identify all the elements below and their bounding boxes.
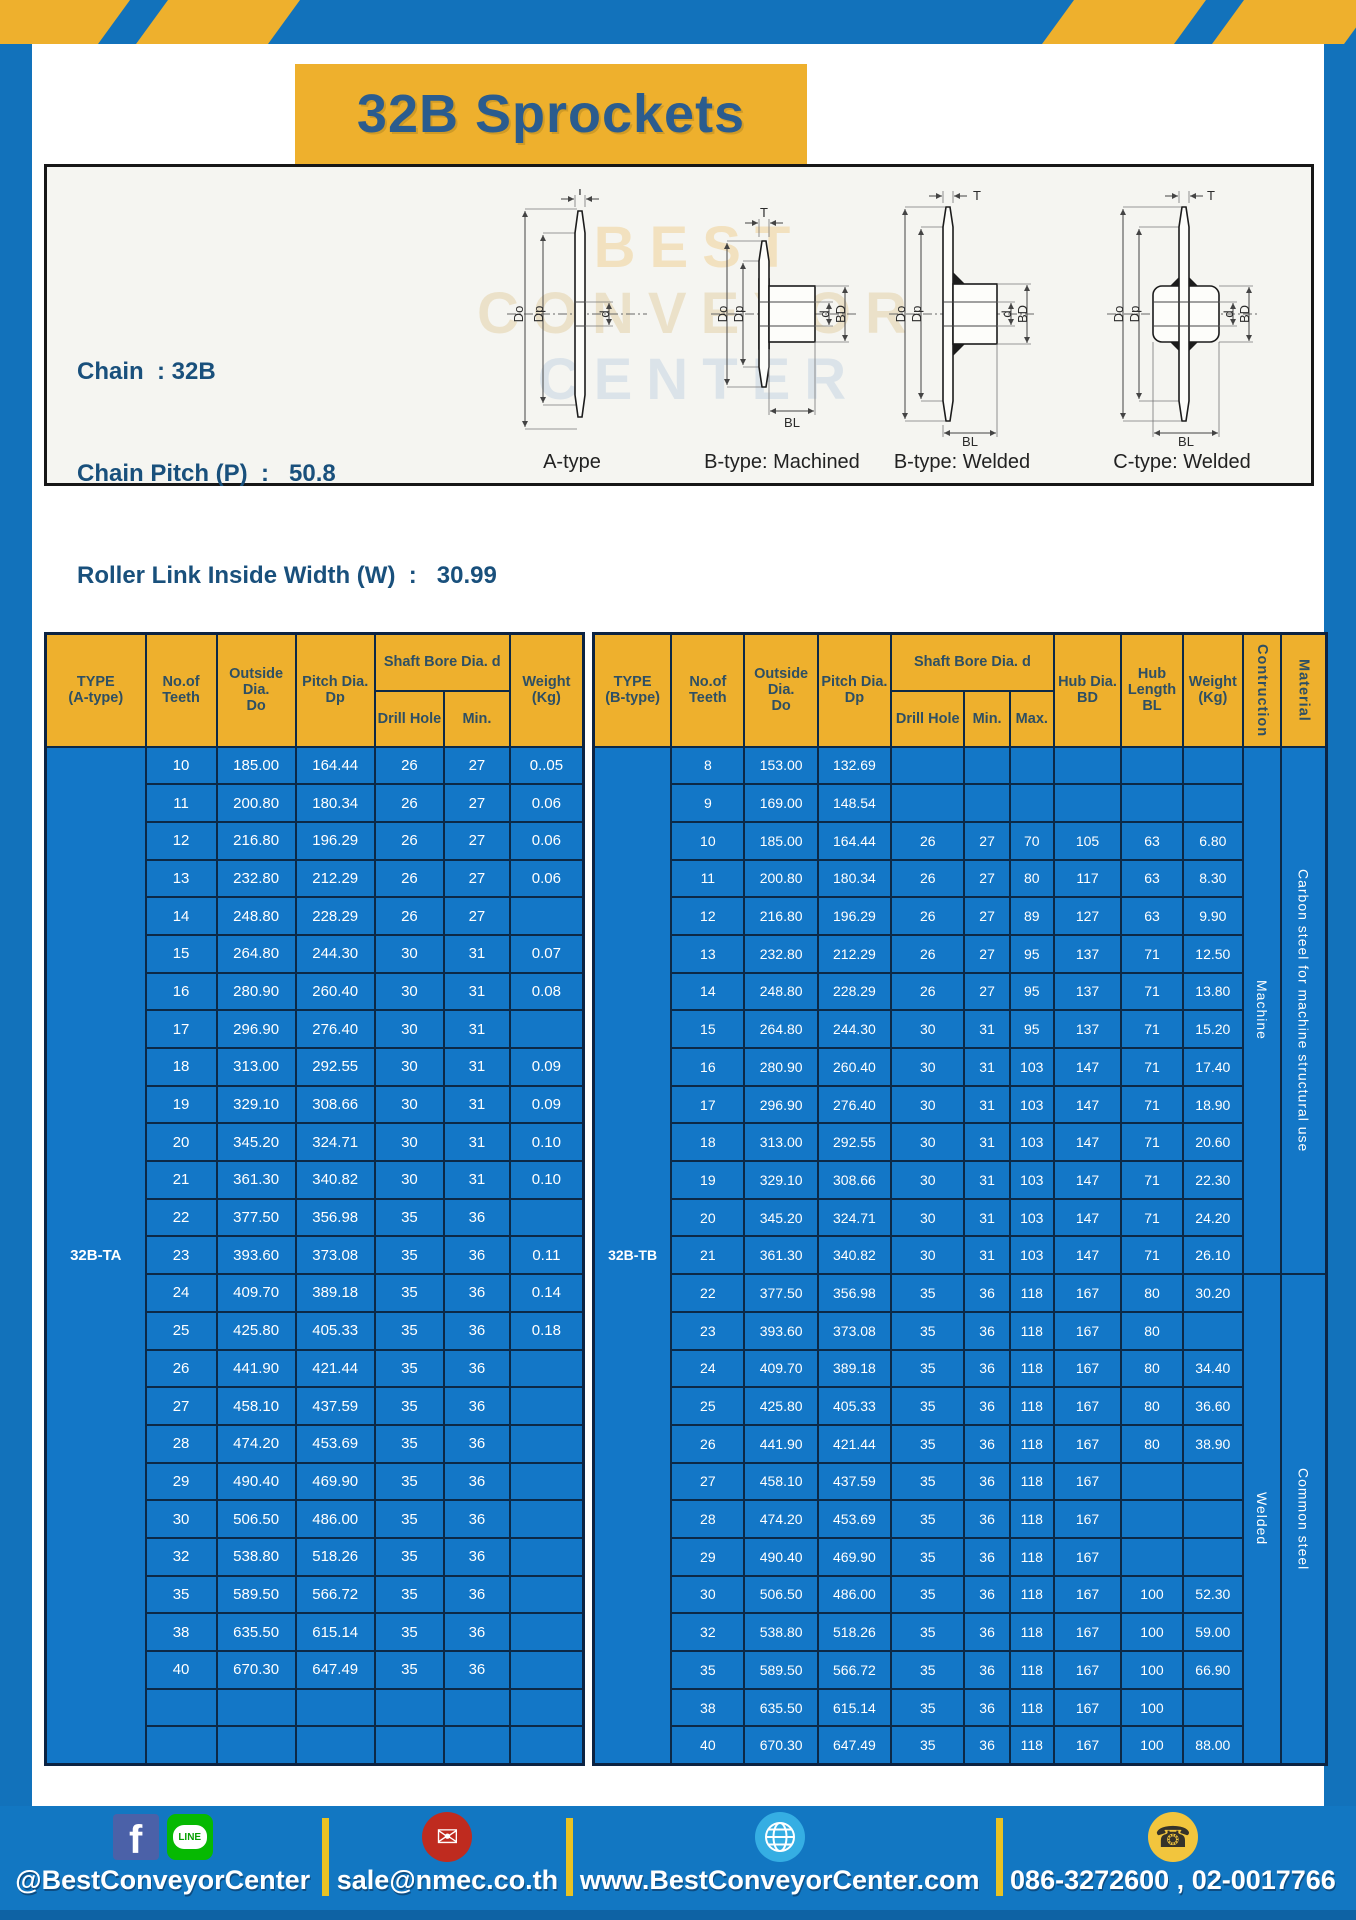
table-cell: 20: [146, 1123, 217, 1161]
table-cell: 35: [375, 1463, 444, 1501]
table-cell: 148.54: [818, 784, 891, 822]
table-cell: 0.10: [510, 1161, 584, 1199]
facebook-letter: f: [129, 1820, 142, 1860]
table-cell: 80: [1121, 1425, 1183, 1463]
table-cell: 40: [146, 1651, 217, 1689]
table-cell: 36: [964, 1689, 1009, 1727]
table-cell: 132.69: [818, 747, 891, 785]
table-cell: 538.80: [217, 1538, 296, 1576]
table-cell: 18: [671, 1123, 744, 1161]
table-cell: 36: [444, 1613, 510, 1651]
table-cell: 35: [671, 1651, 744, 1689]
material-cell: Common steel: [1281, 1274, 1327, 1764]
spec-line: Roller Link Inside Width (W) : 30.99: [77, 559, 497, 593]
table-cell: 393.60: [744, 1312, 817, 1350]
table-cell: 36: [444, 1500, 510, 1538]
table-cell: 425.80: [217, 1312, 296, 1350]
table-cell: 30: [891, 1161, 964, 1199]
header-type: TYPE (A-type): [46, 634, 146, 747]
table-cell: 458.10: [744, 1463, 817, 1501]
table-cell: 80: [1121, 1312, 1183, 1350]
table-cell: 31: [444, 1123, 510, 1161]
page: 32B Sprockets BEST CONVEYOR CENTER Chain…: [0, 0, 1356, 1920]
dim-label-bd: BD: [1237, 305, 1252, 323]
table-cell: 469.90: [296, 1463, 375, 1501]
globe-icon[interactable]: [755, 1812, 805, 1862]
table-cell: 538.80: [744, 1613, 817, 1651]
table-cell: 589.50: [744, 1651, 817, 1689]
table-cell: 340.82: [296, 1161, 375, 1199]
table-cell: 38: [671, 1689, 744, 1727]
table-row: 12216.80196.29262789127639.90: [594, 897, 1327, 935]
table-cell: 35: [891, 1463, 964, 1501]
table-cell: 30: [375, 1048, 444, 1086]
table-cell: [964, 784, 1009, 822]
dim-label-dp: Dp: [909, 306, 924, 323]
table-cell: [510, 1576, 584, 1614]
table-cell: 15.20: [1183, 1010, 1243, 1048]
table-cell: 36: [444, 1312, 510, 1350]
table-row: 22377.50356.9835361181678030.20WeldedCom…: [594, 1274, 1327, 1312]
table-row: 21361.30340.8230311031477126.10: [594, 1236, 1327, 1274]
table-cell: 615.14: [296, 1613, 375, 1651]
table-cell: 27: [444, 747, 510, 785]
table-cell: [510, 1651, 584, 1689]
table-cell: 26: [891, 860, 964, 898]
table-row: 11200.80180.34262780117638.30: [594, 860, 1327, 898]
table-cell: 0.06: [510, 860, 584, 898]
table-cell: 280.90: [744, 1048, 817, 1086]
table-cell: 30: [891, 1236, 964, 1274]
dim-label-d: d: [1221, 310, 1236, 317]
table-cell: 118: [1010, 1651, 1054, 1689]
table-cell: 63: [1121, 860, 1183, 898]
table-row: 17296.90276.4030311031477118.90: [594, 1086, 1327, 1124]
table-cell: [1121, 1500, 1183, 1538]
table-row: 32B-TB8153.00132.69MachineCarbon steel f…: [594, 747, 1327, 785]
table-cell: 26: [375, 747, 444, 785]
table-cell: 29: [146, 1463, 217, 1501]
table-cell: 31: [964, 1086, 1009, 1124]
table-cell: 35: [891, 1576, 964, 1614]
table-cell: 137: [1054, 1010, 1121, 1048]
table-cell: 180.34: [296, 784, 375, 822]
table-cell: 389.18: [818, 1350, 891, 1388]
table-cell: 35: [891, 1538, 964, 1576]
table-cell: 20.60: [1183, 1123, 1243, 1161]
line-icon[interactable]: LINE: [167, 1814, 213, 1860]
table-cell: 80: [1121, 1350, 1183, 1388]
table-cell: 0.08: [510, 973, 584, 1011]
table-cell: 38.90: [1183, 1425, 1243, 1463]
table-row: 18313.00292.5530311031477120.60: [594, 1123, 1327, 1161]
table-cell: 0.11: [510, 1236, 584, 1274]
table-cell: 31: [964, 1048, 1009, 1086]
table-cell: 0.10: [510, 1123, 584, 1161]
table-cell: 453.69: [818, 1500, 891, 1538]
table-cell: 345.20: [217, 1123, 296, 1161]
table-cell: 15: [146, 935, 217, 973]
table-cell: 35: [146, 1576, 217, 1614]
header-min: Min.: [964, 691, 1009, 747]
table-cell: [1121, 1463, 1183, 1501]
table-cell: 9: [671, 784, 744, 822]
table-cell: 361.30: [217, 1161, 296, 1199]
table-cell: [510, 1350, 584, 1388]
table-cell: 26: [891, 897, 964, 935]
table-cell: 19: [146, 1086, 217, 1124]
table-cell: 167: [1054, 1312, 1121, 1350]
table-cell: 31: [444, 1086, 510, 1124]
table-cell: 32: [146, 1538, 217, 1576]
table-cell: 36: [444, 1576, 510, 1614]
table-cell: 13: [146, 860, 217, 898]
table-cell: 30: [891, 1010, 964, 1048]
phone-numbers[interactable]: 086-3272600 , 02-0017766: [1010, 1865, 1336, 1896]
table-cell: 24.20: [1183, 1199, 1243, 1237]
table-cell: 27: [964, 935, 1009, 973]
table-cell: 22: [146, 1199, 217, 1237]
table-cell: 66.90: [1183, 1651, 1243, 1689]
table-cell: 30: [146, 1500, 217, 1538]
table-cell: 296.90: [217, 1010, 296, 1048]
envelope-glyph: ✉: [436, 1822, 459, 1853]
table-cell: 292.55: [818, 1123, 891, 1161]
table-cell: 486.00: [296, 1500, 375, 1538]
table-cell: 100: [1121, 1689, 1183, 1727]
table-cell: 329.10: [217, 1086, 296, 1124]
facebook-icon[interactable]: f: [113, 1814, 159, 1860]
table-cell: 264.80: [744, 1010, 817, 1048]
table-cell: 185.00: [744, 822, 817, 860]
website-url[interactable]: www.BestConveyorCenter.com: [580, 1865, 980, 1896]
table-cell: 9.90: [1183, 897, 1243, 935]
table-cell: 441.90: [744, 1425, 817, 1463]
table-cell: 393.60: [217, 1236, 296, 1274]
table-cell: 26.10: [1183, 1236, 1243, 1274]
table-cell: 35: [375, 1274, 444, 1312]
dim-label-bl: BL: [784, 415, 800, 430]
table-cell: 118: [1010, 1425, 1054, 1463]
table-cell: 313.00: [217, 1048, 296, 1086]
table-cell: [891, 784, 964, 822]
table-cell: 164.44: [296, 747, 375, 785]
table-cell: 0.09: [510, 1048, 584, 1086]
table-cell: 137: [1054, 935, 1121, 973]
hazard-stripe: [1038, 0, 1211, 44]
table-cell: 11: [146, 784, 217, 822]
table-cell: [444, 1726, 510, 1764]
dim-label-t: T: [973, 189, 981, 203]
header-type: TYPE (B-type): [594, 634, 672, 747]
header-drill-hole: Drill Hole: [375, 691, 444, 747]
table-cell: 35: [891, 1425, 964, 1463]
table-cell: [1010, 747, 1054, 785]
table-cell: 324.71: [296, 1123, 375, 1161]
table-cell: 36: [964, 1312, 1009, 1350]
table-cell: 36: [444, 1651, 510, 1689]
table-row: 29490.40469.903536118167: [594, 1538, 1327, 1576]
construction-cell: Machine: [1243, 747, 1281, 1275]
table-row: 32538.80518.26353611816710059.00: [594, 1613, 1327, 1651]
footer-email-section: ✉ sale@nmec.co.th: [325, 1806, 569, 1910]
phone-icon[interactable]: ☎: [1148, 1812, 1198, 1862]
header-pitch-dia: Pitch Dia. Dp: [296, 634, 375, 747]
table-cell: 421.44: [296, 1350, 375, 1388]
table-cell: [296, 1689, 375, 1727]
social-handle[interactable]: @BestConveyorCenter: [15, 1865, 310, 1896]
table-cell: 308.66: [818, 1161, 891, 1199]
table-cell: 117: [1054, 860, 1121, 898]
table-cell: 313.00: [744, 1123, 817, 1161]
table-cell: 127: [1054, 897, 1121, 935]
table-cell: 20: [671, 1199, 744, 1237]
table-cell: [375, 1726, 444, 1764]
table-cell: 80: [1121, 1274, 1183, 1312]
table-cell: 24: [671, 1350, 744, 1388]
table-cell: 35: [891, 1274, 964, 1312]
table-cell: 167: [1054, 1350, 1121, 1388]
table-cell: 506.50: [744, 1576, 817, 1614]
line-label: LINE: [178, 1832, 201, 1843]
table-cell: 71: [1121, 1048, 1183, 1086]
table-cell: 35: [375, 1613, 444, 1651]
dim-label-do: Do: [715, 306, 730, 323]
table-cell: 30: [891, 1048, 964, 1086]
table-cell: 14: [671, 973, 744, 1011]
drawing-caption: B-type: Welded: [857, 451, 1067, 474]
table-cell: 71: [1121, 1161, 1183, 1199]
dim-label-t: T: [760, 205, 768, 220]
table-cell: 35: [375, 1199, 444, 1237]
table-cell: 36: [964, 1274, 1009, 1312]
table-cell: 167: [1054, 1576, 1121, 1614]
table-cell: 36: [964, 1651, 1009, 1689]
table-cell: 35: [375, 1312, 444, 1350]
header-min: Min.: [444, 691, 510, 747]
email-icon[interactable]: ✉: [422, 1812, 472, 1862]
table-row: 38635.50615.143536118167100: [594, 1689, 1327, 1727]
table-cell: 356.98: [818, 1274, 891, 1312]
table-cell: 635.50: [217, 1613, 296, 1651]
title-banner: 32B Sprockets: [295, 64, 807, 164]
table-cell: 100: [1121, 1613, 1183, 1651]
table-cell: 36: [964, 1726, 1009, 1764]
table-cell: 405.33: [296, 1312, 375, 1350]
table-row: 23393.60373.08353611816780: [594, 1312, 1327, 1350]
table-cell: [146, 1726, 217, 1764]
table-cell: 36.60: [1183, 1387, 1243, 1425]
table-cell: 566.72: [296, 1576, 375, 1614]
table-cell: 31: [444, 1010, 510, 1048]
table-cell: 437.59: [818, 1463, 891, 1501]
table-cell: 35: [891, 1500, 964, 1538]
table-cell: 95: [1010, 1010, 1054, 1048]
table-cell: 35: [375, 1236, 444, 1274]
material-cell: Carbon steel for machine structural use: [1281, 747, 1327, 1275]
table-cell: 29: [671, 1538, 744, 1576]
table-cell: 147: [1054, 1236, 1121, 1274]
table-cell: 35: [375, 1387, 444, 1425]
table-cell: [891, 747, 964, 785]
table-row: 32B-TA10185.00164.4426270..05: [46, 747, 584, 785]
table-cell: 31: [964, 1199, 1009, 1237]
dim-label-do: Do: [1111, 306, 1126, 323]
table-cell: 345.20: [744, 1199, 817, 1237]
header-pitch-dia: Pitch Dia. Dp: [818, 634, 891, 747]
table-cell: 36: [964, 1387, 1009, 1425]
spec-line: Chain : 32B: [77, 355, 497, 389]
table-cell: [510, 1199, 584, 1237]
table-cell: 103: [1010, 1236, 1054, 1274]
table-cell: 635.50: [744, 1689, 817, 1727]
table-cell: 0.09: [510, 1086, 584, 1124]
table-cell: 22.30: [1183, 1161, 1243, 1199]
table-cell: [1010, 784, 1054, 822]
a-type-drawing: T Do Dp d A-type: [487, 189, 657, 481]
table-cell: 35: [891, 1387, 964, 1425]
table-row: 30506.50486.00353611816710052.30: [594, 1576, 1327, 1614]
construction-cell: Welded: [1243, 1274, 1281, 1764]
table-cell: 167: [1054, 1274, 1121, 1312]
table-cell: 0.14: [510, 1274, 584, 1312]
table-row: 16280.90260.4030311031477117.40: [594, 1048, 1327, 1086]
table-row: 13232.80212.292627951377112.50: [594, 935, 1327, 973]
b-type-welded-drawing: T BL Do Dp d BD B-type: Welded: [877, 189, 1047, 481]
table-cell: 276.40: [818, 1086, 891, 1124]
table-cell: 59.00: [1183, 1613, 1243, 1651]
table-cell: 88.00: [1183, 1726, 1243, 1764]
table-cell: 324.71: [818, 1199, 891, 1237]
table-cell: 26: [375, 822, 444, 860]
header-weight: Weight (Kg): [1183, 634, 1243, 747]
footer-phone-section: ☎ 086-3272600 , 02-0017766: [990, 1806, 1356, 1910]
table-cell: 244.30: [818, 1010, 891, 1048]
drawing-caption: A-type: [467, 451, 677, 474]
c-type-welded-drawing: T BL Do Dp d BD C-type: Welded: [1097, 189, 1267, 481]
table-cell: 31: [444, 1048, 510, 1086]
email-address[interactable]: sale@nmec.co.th: [337, 1865, 558, 1896]
table-cell: 167: [1054, 1651, 1121, 1689]
table-cell: 71: [1121, 1199, 1183, 1237]
table-cell: 21: [146, 1161, 217, 1199]
table-cell: 296.90: [744, 1086, 817, 1124]
table-cell: 228.29: [818, 973, 891, 1011]
drawing-caption: C-type: Welded: [1077, 451, 1287, 474]
table-cell: 28: [146, 1425, 217, 1463]
table-cell: 30: [375, 1010, 444, 1048]
table-cell: 118: [1010, 1387, 1054, 1425]
header-max: Max.: [1010, 691, 1054, 747]
table-cell: 27: [964, 822, 1009, 860]
table-cell: 36: [444, 1199, 510, 1237]
type-label-cell: 32B-TB: [594, 747, 672, 1765]
table-cell: 232.80: [744, 935, 817, 973]
header-hub-dia: Hub Dia. BD: [1054, 634, 1121, 747]
table-cell: 26: [146, 1350, 217, 1388]
table-row: 9169.00148.54: [594, 784, 1327, 822]
table-cell: 95: [1010, 935, 1054, 973]
dim-label-d: d: [999, 310, 1014, 317]
table-cell: 361.30: [744, 1236, 817, 1274]
table-cell: [1054, 747, 1121, 785]
table-cell: 35: [375, 1350, 444, 1388]
table-cell: 647.49: [818, 1726, 891, 1764]
table-cell: 11: [671, 860, 744, 898]
table-cell: 23: [671, 1312, 744, 1350]
table-cell: 35: [375, 1425, 444, 1463]
table-cell: 30: [891, 1199, 964, 1237]
table-cell: 167: [1054, 1613, 1121, 1651]
header-teeth: No.of Teeth: [146, 634, 217, 747]
table-cell: 100: [1121, 1576, 1183, 1614]
table-cell: 30: [891, 1123, 964, 1161]
b-type-machined-drawing: T BL Do Dp d BD B-type: Machined: [697, 189, 867, 481]
table-cell: 30: [375, 973, 444, 1011]
table-cell: 16: [146, 973, 217, 1011]
table-row: 24409.70389.1835361181678034.40: [594, 1350, 1327, 1388]
top-hazard-band: [0, 0, 1356, 44]
footer-bottom-strip: [0, 1910, 1356, 1920]
table-cell: 12: [671, 897, 744, 935]
table-cell: 23: [146, 1236, 217, 1274]
table-cell: 100: [1121, 1651, 1183, 1689]
table-cell: 10: [146, 747, 217, 785]
table-row: 10185.00164.44262770105636.80: [594, 822, 1327, 860]
table-cell: 36: [964, 1538, 1009, 1576]
header-shaft-bore-group: Shaft Bore Dia. d: [375, 634, 510, 691]
table-cell: 36: [444, 1538, 510, 1576]
table-cell: 30: [375, 1161, 444, 1199]
dim-label-dp: Dp: [531, 306, 546, 323]
table-cell: 518.26: [296, 1538, 375, 1576]
table-cell: 216.80: [217, 822, 296, 860]
table-cell: 26: [671, 1425, 744, 1463]
dim-label-do: Do: [893, 306, 908, 323]
drawing-panel: BEST CONVEYOR CENTER Chain : 32B Chain P…: [44, 164, 1314, 486]
table-cell: 260.40: [296, 973, 375, 1011]
table-cell: 232.80: [217, 860, 296, 898]
table-cell: 103: [1010, 1123, 1054, 1161]
table-cell: 228.29: [296, 897, 375, 935]
table-cell: 27: [146, 1387, 217, 1425]
dim-label-bd: BD: [833, 305, 848, 323]
table-cell: 0.06: [510, 822, 584, 860]
table-cell: 0..05: [510, 747, 584, 785]
table-row: 27458.10437.593536118167: [594, 1463, 1327, 1501]
table-cell: 474.20: [744, 1500, 817, 1538]
table-cell: [375, 1689, 444, 1727]
footer: f LINE @BestConveyorCenter ✉ sale@nmec.c…: [0, 1806, 1356, 1920]
table-cell: 200.80: [744, 860, 817, 898]
table-cell: 425.80: [744, 1387, 817, 1425]
table-cell: 615.14: [818, 1689, 891, 1727]
table-cell: 329.10: [744, 1161, 817, 1199]
table-cell: 340.82: [818, 1236, 891, 1274]
hazard-stripe: [132, 0, 305, 44]
table-cell: [296, 1726, 375, 1764]
table-row: 28474.20453.693536118167: [594, 1500, 1327, 1538]
table-row: 40670.30647.49353611816710088.00: [594, 1726, 1327, 1764]
header-hub-length: Hub Length BL: [1121, 634, 1183, 747]
table-cell: [510, 1500, 584, 1538]
table-cell: 36: [964, 1425, 1009, 1463]
table-cell: 474.20: [217, 1425, 296, 1463]
table-cell: 0.18: [510, 1312, 584, 1350]
dim-label-do: Do: [511, 306, 526, 323]
table-cell: 276.40: [296, 1010, 375, 1048]
table-cell: [510, 1726, 584, 1764]
